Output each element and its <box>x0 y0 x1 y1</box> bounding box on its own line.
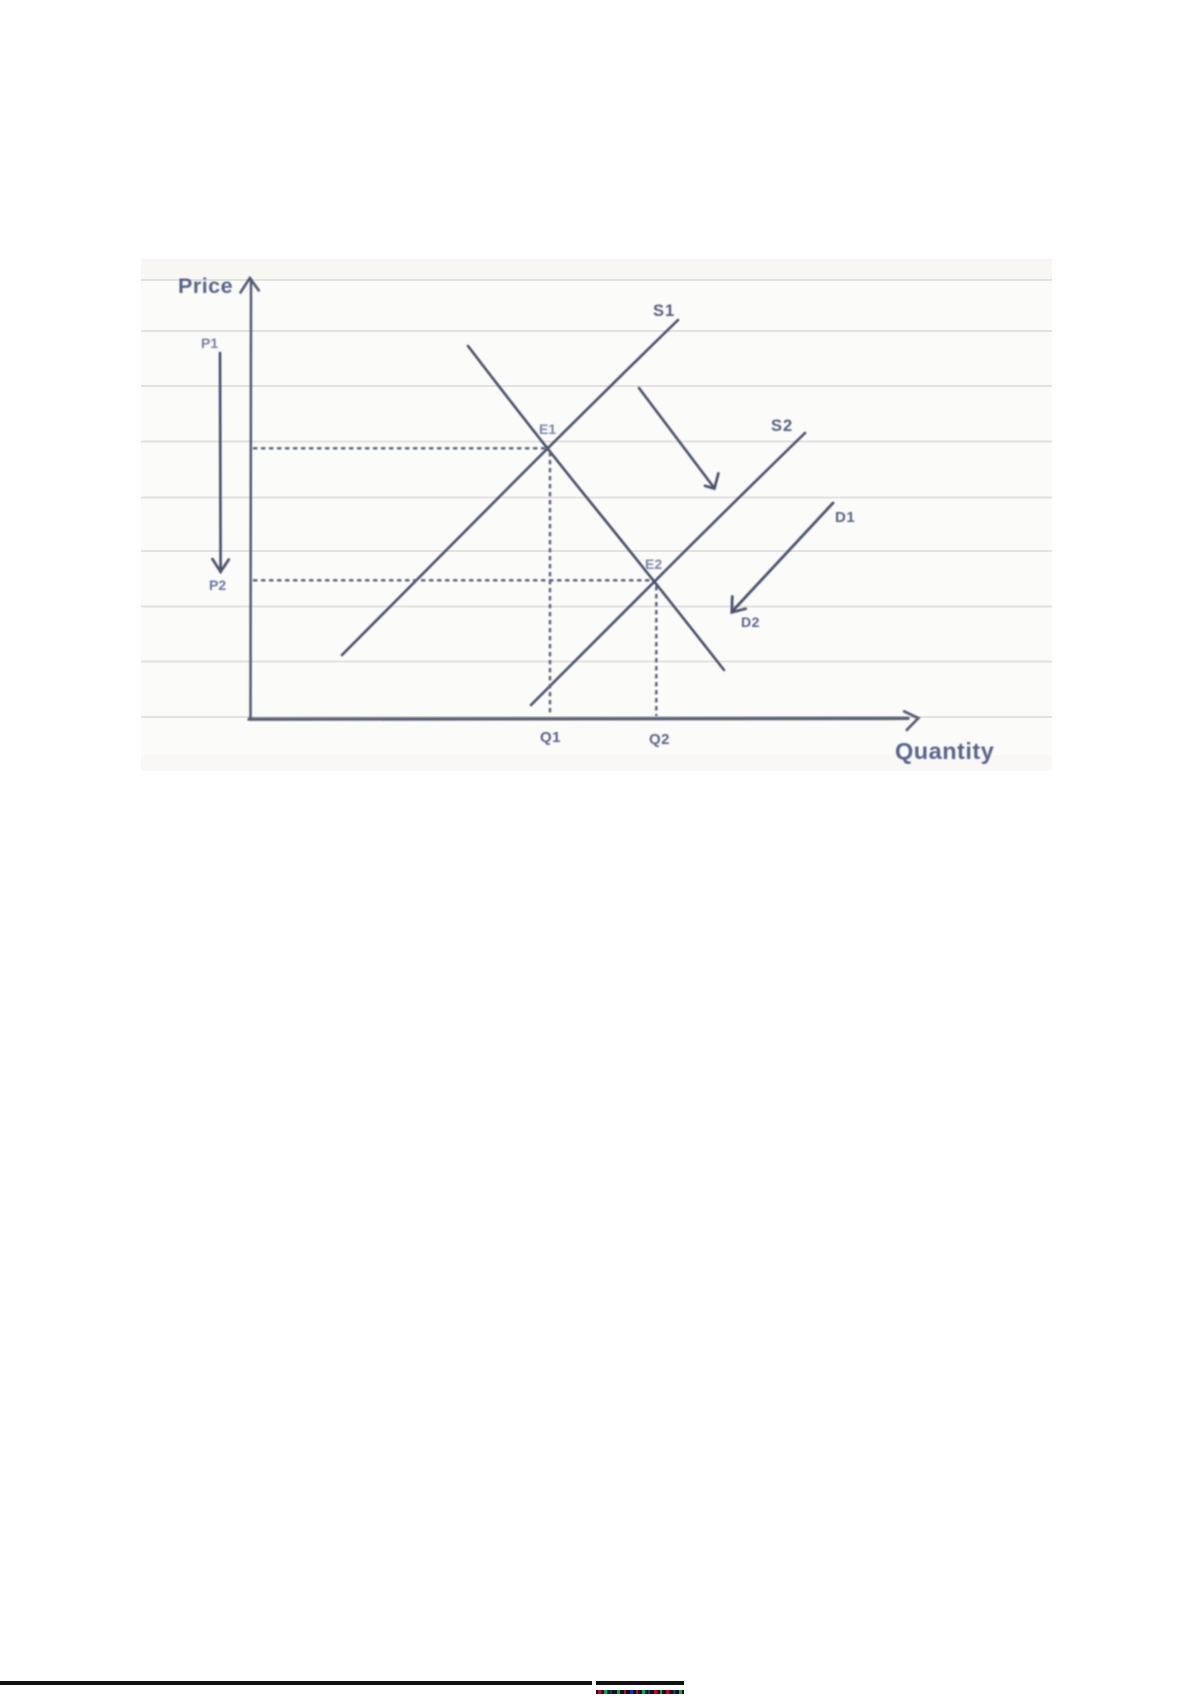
svg-text:S1: S1 <box>653 302 675 320</box>
svg-text:E2: E2 <box>645 556 662 572</box>
svg-text:P2: P2 <box>209 577 226 593</box>
svg-text:E1: E1 <box>539 421 556 437</box>
svg-text:Q2: Q2 <box>649 731 670 748</box>
svg-text:Quantity: Quantity <box>895 738 994 764</box>
svg-text:S2: S2 <box>771 417 793 435</box>
svg-text:P1: P1 <box>201 335 218 351</box>
svg-text:D2: D2 <box>741 614 760 630</box>
svg-text:Price: Price <box>178 274 233 298</box>
svg-text:Q1: Q1 <box>540 729 561 746</box>
svg-text:D1: D1 <box>835 509 855 526</box>
